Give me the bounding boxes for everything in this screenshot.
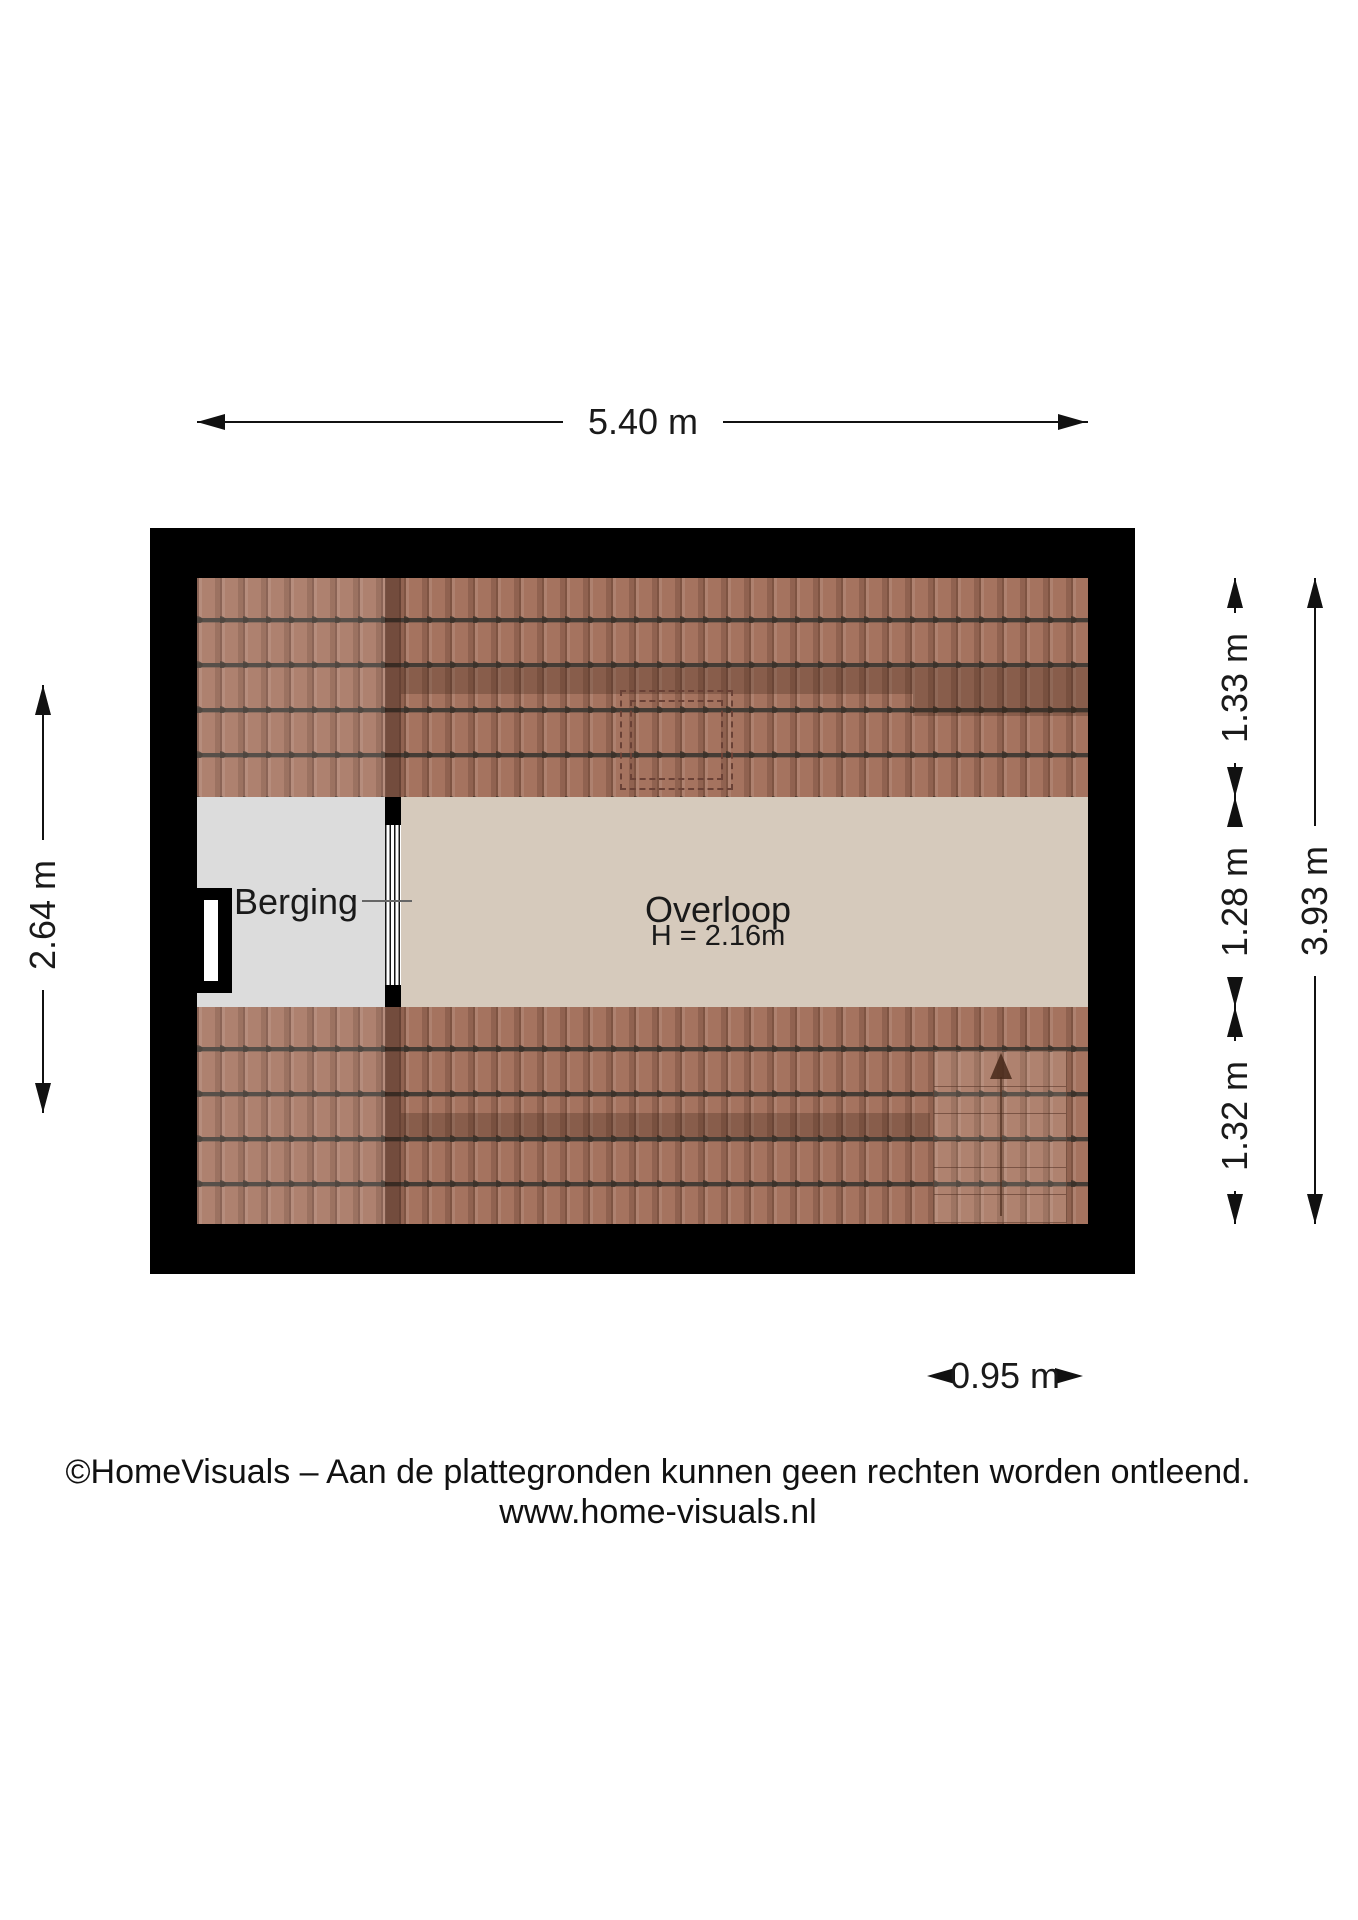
staircase (933, 1050, 1067, 1223)
footer-disclaimer: ©HomeVisuals – Aan de plattegronden kunn… (0, 1452, 1316, 1492)
plan-interior: Berging Overloop H = 2.16m (197, 578, 1088, 1224)
dim-arrow-down-icon (1227, 977, 1243, 1007)
dim-bottom-label: 0.95 m (930, 1354, 1080, 1398)
dim-right-seg2-label: 1.28 m (1213, 827, 1257, 977)
roof-lower (197, 1007, 1088, 1224)
dim-arrow-up-icon (1227, 797, 1243, 827)
dim-arrow-down-icon (1307, 1194, 1323, 1224)
dim-arrow-up-icon (35, 685, 51, 715)
roof-upper (197, 578, 1088, 797)
dim-right-seg3-label: 1.32 m (1213, 1041, 1257, 1191)
dim-arrow-right-icon (1058, 414, 1086, 430)
dim-arrow-down-icon (1227, 767, 1243, 797)
overloop-height-label: H = 2.16m (618, 921, 818, 951)
skylight-inner-frame (630, 700, 723, 780)
dim-top-label: 5.40 m (563, 400, 723, 444)
dim-arrow-left-icon (197, 414, 225, 430)
footer-website: www.home-visuals.nl (0, 1492, 1316, 1532)
roof-lower-left-section (197, 1007, 385, 1224)
roof-upper-left-section (197, 578, 385, 797)
stair-tread (934, 1194, 1066, 1195)
roof-lower-shadow (401, 1113, 930, 1137)
stair-tread (934, 1113, 1066, 1114)
roof-upper-shadow-step (913, 694, 1088, 716)
berging-door (385, 825, 401, 985)
dim-right-seg1-label: 1.33 m (1213, 613, 1257, 763)
divider-wall-post-bottom (385, 985, 401, 1007)
berging-label: Berging (216, 880, 376, 924)
stair-tread (934, 1167, 1066, 1168)
roof-divider-ridge-lower (385, 1007, 401, 1224)
footer: ©HomeVisuals – Aan de plattegronden kunn… (0, 1452, 1316, 1532)
dim-arrow-up-icon (1227, 578, 1243, 608)
skylight (620, 690, 733, 790)
stair-tread (934, 1086, 1066, 1087)
roof-divider-ridge (385, 578, 401, 797)
roof-upper-shadow (401, 668, 1088, 694)
dim-arrow-up-icon (1307, 578, 1323, 608)
floorplan-page: 5.40 m 2.64 m (0, 0, 1358, 1920)
dim-left-label: 2.64 m (21, 840, 65, 990)
berging-leader-line (362, 900, 412, 902)
stairs-direction-line (1000, 1077, 1002, 1216)
stairs-up-arrow-icon (990, 1053, 1012, 1079)
divider-wall-post-top (385, 797, 401, 825)
floor-plan: Berging Overloop H = 2.16m (150, 528, 1135, 1274)
dim-right-total-label: 3.93 m (1293, 826, 1337, 976)
dim-arrow-up-icon (1227, 1007, 1243, 1037)
stair-tread (934, 1140, 1066, 1141)
dim-arrow-down-icon (1227, 1194, 1243, 1224)
dim-arrow-down-icon (35, 1083, 51, 1113)
